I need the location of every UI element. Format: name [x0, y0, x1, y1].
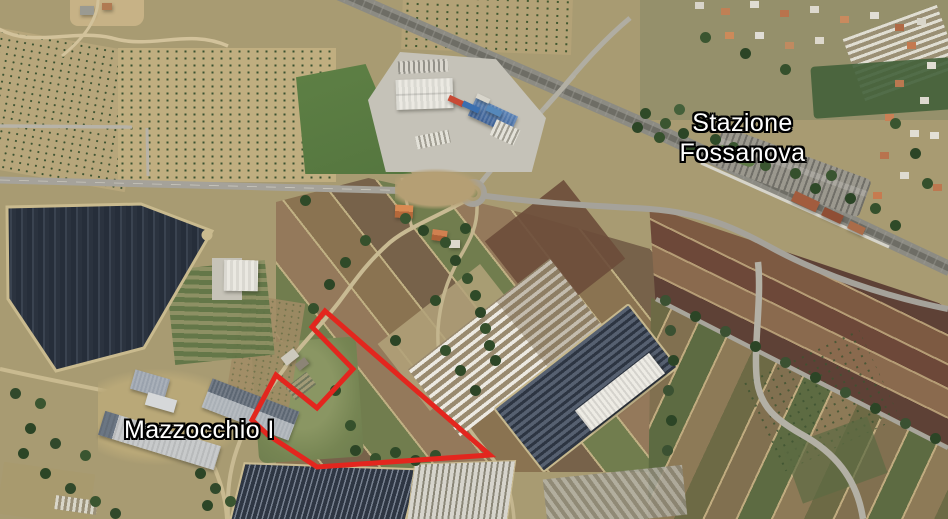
railway-crossing-road: [545, 75, 574, 108]
map-label-stazione-fossanova: Stazione Fossanova: [640, 108, 845, 168]
tree-cluster-center: [300, 195, 311, 206]
warehouse-white-top: [395, 78, 453, 110]
houses-cluster-upper-right: [695, 2, 704, 9]
industrial-yard: [368, 52, 546, 172]
label-line-1: Stazione: [640, 108, 845, 138]
house-orange-roof-2: [431, 229, 447, 242]
tree-line-southeast-road: [660, 295, 671, 306]
tree-cluster-bottom-left: [10, 388, 21, 399]
house-orange-roof: [395, 205, 414, 219]
shed-white: [449, 240, 460, 248]
park-building: [80, 6, 94, 15]
label-line-1: Mazzocchio I: [124, 415, 275, 445]
orchard-top-center: [401, 0, 573, 55]
label-line-2: Fossanova: [640, 138, 845, 168]
greenhouse-strips-bottom-right: [543, 465, 687, 519]
farm-dirt-patch: [395, 168, 485, 210]
warehouse-white-midleft: [224, 260, 259, 292]
satellite-map-canvas[interactable]: Stazione Fossanova Mazzocchio I: [0, 0, 948, 519]
park-building-2: [102, 3, 112, 10]
solar-array-bottom-white: [406, 460, 516, 519]
solar-array-bottom: [228, 462, 419, 519]
parked-trucks-row: [398, 59, 449, 75]
map-label-mazzocchio: Mazzocchio I: [124, 415, 275, 445]
station-building-3: [847, 221, 866, 235]
